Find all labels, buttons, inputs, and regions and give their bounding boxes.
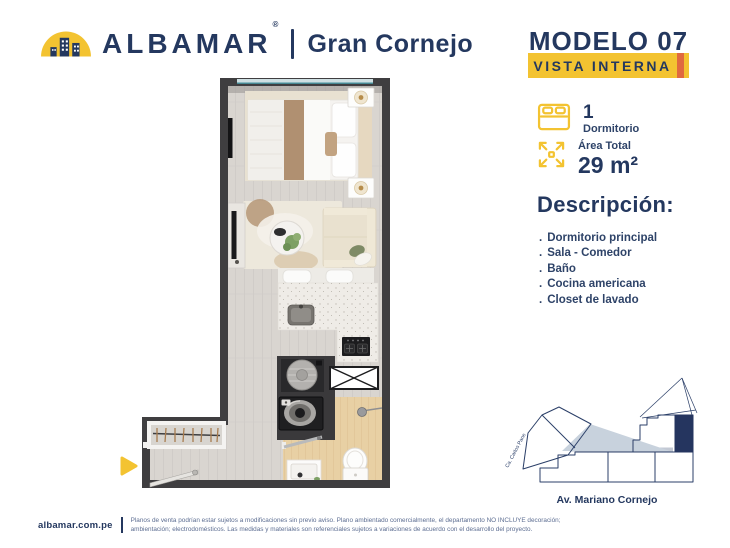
bar-stool xyxy=(283,270,311,283)
washer-top-view xyxy=(281,359,324,392)
area-value: 29 m² xyxy=(578,153,638,177)
description-list: .Dormitorio principal .Sala - Comedor .B… xyxy=(539,231,717,308)
project-name: Gran Cornejo xyxy=(307,32,473,57)
list-item: .Dormitorio principal xyxy=(539,231,717,246)
brochure-page: ALBAMAR® Gran Cornejo MODELO 07 VISTA IN… xyxy=(0,0,730,548)
sight-lines xyxy=(640,378,697,418)
albamar-dome-skyline-icon xyxy=(40,30,92,58)
view-badge: VISTA INTERNA xyxy=(528,53,689,78)
kitchen-sink xyxy=(288,305,314,326)
bathroom-vanity xyxy=(287,460,321,483)
brand-divider xyxy=(291,29,294,59)
site-map: Ca. Carlos Pane Av. Mariano Cornejo xyxy=(495,363,723,511)
list-item: .Cocina americana xyxy=(539,277,717,292)
description-section: Descripción: .Dormitorio principal .Sala… xyxy=(537,192,717,308)
bedroom-tv xyxy=(228,118,233,158)
washer-front-view xyxy=(279,397,323,430)
closet-hangers xyxy=(147,421,226,449)
bed xyxy=(248,96,372,184)
street-label-bottom: Av. Mariano Cornejo xyxy=(557,494,658,506)
floor-plan xyxy=(110,70,410,495)
list-item: .Closet de lavado xyxy=(539,293,717,308)
bed-icon xyxy=(537,103,571,131)
description-heading: Descripción: xyxy=(537,192,717,218)
disclaimer: Planos de venta podrían estar sujetos a … xyxy=(131,516,561,534)
highlighted-unit xyxy=(675,415,693,452)
door-jamb xyxy=(143,442,150,448)
window xyxy=(237,79,373,84)
expand-arrows-icon xyxy=(537,140,566,169)
nightstand-bottom xyxy=(348,178,374,198)
spec-bedrooms: 1 Dormitorio xyxy=(537,103,639,136)
footer: albamar.com.pe Planos de venta podrían e… xyxy=(38,516,560,534)
list-item: .Baño xyxy=(539,262,717,277)
living-tv xyxy=(232,211,237,259)
bedrooms-label: Dormitorio xyxy=(583,123,639,136)
entrance-arrow-icon xyxy=(122,458,136,474)
shaded-area xyxy=(562,424,670,451)
sofa xyxy=(323,208,376,268)
brand-logo: ALBAMAR® Gran Cornejo xyxy=(40,22,473,66)
brand-name: ALBAMAR® xyxy=(102,30,281,58)
coffee-table xyxy=(270,221,304,255)
bar-stool xyxy=(326,270,353,283)
website-text: albamar.com.pe xyxy=(38,520,113,531)
bedrooms-value: 1 xyxy=(583,103,639,123)
laundry-closet-x xyxy=(330,367,378,389)
registered-mark: ® xyxy=(273,20,283,29)
nightstand-top xyxy=(348,88,374,107)
tv-console xyxy=(228,203,245,268)
stove xyxy=(342,337,370,356)
list-item: .Sala - Comedor xyxy=(539,246,717,261)
spec-area: Área Total 29 m² xyxy=(537,140,638,177)
view-badge-label: VISTA INTERNA xyxy=(533,58,683,74)
toilet xyxy=(343,448,368,482)
footer-divider xyxy=(121,517,123,533)
building-left-wing xyxy=(523,407,591,469)
